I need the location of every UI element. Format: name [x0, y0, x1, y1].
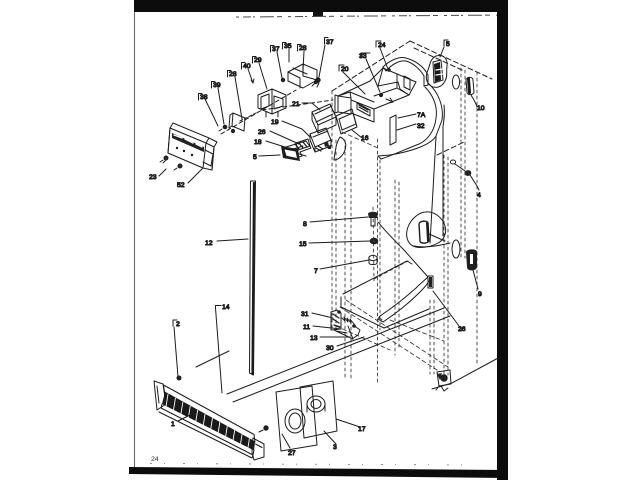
- svg-text:26: 26: [458, 326, 466, 333]
- svg-text:19: 19: [271, 119, 279, 126]
- svg-text:5: 5: [446, 41, 450, 48]
- svg-text:17: 17: [358, 426, 366, 433]
- svg-text:35: 35: [284, 43, 292, 50]
- svg-text:33: 33: [359, 53, 367, 60]
- svg-text:37: 37: [272, 46, 280, 53]
- svg-text:20: 20: [341, 66, 349, 73]
- svg-text:5: 5: [253, 154, 257, 161]
- svg-text:39: 39: [213, 82, 221, 89]
- svg-text:7: 7: [314, 268, 318, 275]
- svg-text:11: 11: [303, 324, 310, 331]
- svg-text:15: 15: [299, 241, 307, 248]
- svg-text:12: 12: [205, 240, 213, 247]
- svg-text:32: 32: [417, 123, 425, 130]
- svg-text:3: 3: [333, 444, 337, 451]
- svg-text:40: 40: [243, 63, 251, 70]
- svg-text:4: 4: [477, 192, 481, 199]
- svg-text:23: 23: [149, 174, 157, 181]
- svg-text:14: 14: [222, 304, 230, 311]
- svg-text:8: 8: [303, 221, 307, 228]
- svg-text:2: 2: [176, 321, 180, 328]
- svg-text:26: 26: [258, 129, 266, 136]
- svg-text:10: 10: [477, 105, 485, 112]
- svg-text:24: 24: [151, 456, 159, 463]
- svg-text:38: 38: [200, 94, 208, 101]
- svg-text:24: 24: [378, 42, 386, 49]
- svg-text:9: 9: [478, 291, 482, 298]
- svg-text:18: 18: [254, 139, 262, 146]
- svg-text:30: 30: [326, 345, 334, 352]
- svg-text:28: 28: [299, 45, 307, 52]
- svg-text:1: 1: [171, 421, 175, 428]
- svg-text:31: 31: [301, 311, 309, 318]
- svg-text:7A: 7A: [417, 112, 426, 119]
- svg-text:37: 37: [326, 39, 334, 46]
- svg-text:13: 13: [310, 335, 318, 342]
- svg-text:52: 52: [177, 182, 185, 189]
- svg-text:27: 27: [288, 450, 296, 457]
- svg-text:29: 29: [254, 57, 262, 64]
- svg-text:21: 21: [292, 101, 300, 108]
- svg-text:28: 28: [229, 71, 237, 78]
